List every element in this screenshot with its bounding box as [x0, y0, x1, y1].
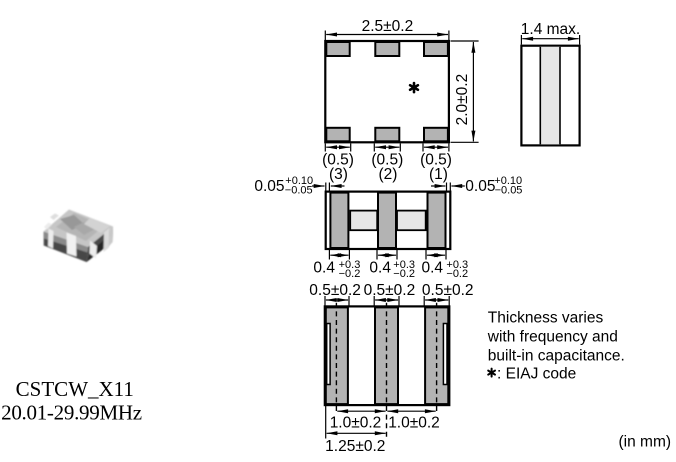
svg-text:1.4 max.: 1.4 max.: [521, 21, 580, 38]
svg-text:(3): (3): [329, 166, 348, 183]
svg-text:−0.2: −0.2: [393, 268, 415, 280]
svg-text:0.5±0.2: 0.5±0.2: [309, 282, 361, 299]
svg-text:1.0±0.2: 1.0±0.2: [388, 414, 440, 431]
svg-text:2.0±0.2: 2.0±0.2: [454, 74, 471, 126]
svg-text:0.4: 0.4: [369, 259, 391, 276]
svg-text:20.01-29.99MHz: 20.01-29.99MHz: [1, 401, 142, 425]
svg-text:0.05: 0.05: [254, 178, 284, 195]
svg-text:with frequency and: with frequency and: [487, 329, 618, 346]
svg-text:0.5±0.2: 0.5±0.2: [422, 282, 474, 299]
svg-text:0.4: 0.4: [313, 259, 335, 276]
svg-text:(2): (2): [379, 166, 398, 183]
svg-text:(1): (1): [429, 166, 448, 183]
svg-text:(in mm): (in mm): [619, 434, 672, 451]
svg-text:−0.05: −0.05: [495, 184, 523, 196]
svg-text:built-in capacitance.: built-in capacitance.: [488, 348, 625, 365]
svg-text:CSTCW_X11: CSTCW_X11: [16, 377, 134, 401]
svg-text:0.05: 0.05: [465, 178, 495, 195]
svg-text:2.5±0.2: 2.5±0.2: [362, 18, 414, 35]
svg-text:−0.05: −0.05: [285, 184, 313, 196]
svg-text:: EIAJ code: : EIAJ code: [497, 365, 576, 382]
svg-text:0.5±0.2: 0.5±0.2: [364, 282, 416, 299]
svg-text:−0.2: −0.2: [446, 268, 468, 280]
svg-text:1.25±0.2: 1.25±0.2: [325, 438, 385, 455]
svg-text:Thickness varies: Thickness varies: [488, 310, 604, 327]
svg-text:0.4: 0.4: [422, 259, 444, 276]
svg-text:1.0±0.2: 1.0±0.2: [330, 414, 382, 431]
svg-text:−0.2: −0.2: [339, 268, 361, 280]
